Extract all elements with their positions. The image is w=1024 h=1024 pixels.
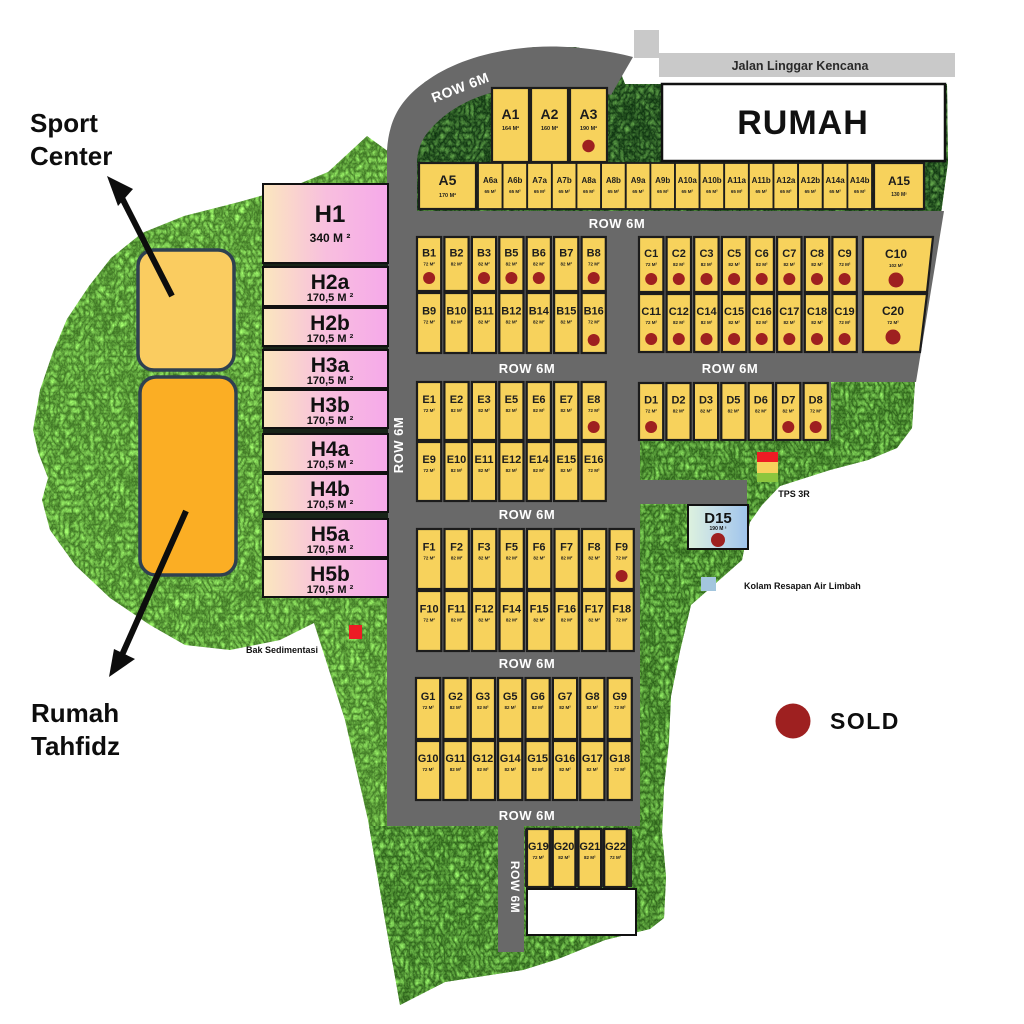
svg-text:72 M²: 72 M² <box>588 468 600 473</box>
svg-text:82 M²: 82 M² <box>673 409 685 414</box>
svg-text:F15: F15 <box>530 604 549 616</box>
svg-text:65 M²: 65 M² <box>509 189 521 194</box>
svg-text:A12b: A12b <box>801 176 821 185</box>
svg-text:82 M²: 82 M² <box>533 468 545 473</box>
svg-text:82 M²: 82 M² <box>506 320 518 325</box>
svg-text:D5: D5 <box>726 395 740 407</box>
svg-text:Rumah: Rumah <box>31 698 119 728</box>
svg-text:E6: E6 <box>532 394 545 406</box>
svg-text:E2: E2 <box>450 394 463 406</box>
svg-text:D6: D6 <box>754 395 768 407</box>
svg-text:65 M²: 65 M² <box>755 189 767 194</box>
svg-text:82 M²: 82 M² <box>451 320 463 325</box>
svg-text:A9a: A9a <box>631 176 646 185</box>
svg-text:130 M²: 130 M² <box>891 192 907 198</box>
svg-text:72 M²: 72 M² <box>422 705 434 710</box>
svg-text:82 M²: 82 M² <box>588 618 600 623</box>
svg-text:E8: E8 <box>587 394 600 406</box>
svg-text:72 M²: 72 M² <box>588 408 600 413</box>
svg-text:G17: G17 <box>582 753 603 765</box>
svg-text:340 M ²: 340 M ² <box>310 231 351 245</box>
svg-text:82 M²: 82 M² <box>756 320 768 325</box>
svg-text:E12: E12 <box>502 454 522 466</box>
svg-text:72 M²: 72 M² <box>533 855 545 860</box>
svg-text:82 M²: 82 M² <box>561 556 573 561</box>
svg-text:82 M²: 82 M² <box>450 767 462 772</box>
svg-text:82 M²: 82 M² <box>478 408 490 413</box>
svg-text:82 M²: 82 M² <box>755 409 767 414</box>
svg-text:190 M²: 190 M² <box>580 125 597 132</box>
svg-text:82 M²: 82 M² <box>451 408 463 413</box>
svg-text:G22: G22 <box>605 841 626 853</box>
svg-text:G20: G20 <box>554 841 575 853</box>
svg-text:E7: E7 <box>560 394 573 406</box>
svg-text:ROW 6M: ROW 6M <box>499 361 555 376</box>
svg-text:A6b: A6b <box>507 176 522 185</box>
svg-text:72 M²: 72 M² <box>645 409 657 414</box>
svg-text:ROW 6M: ROW 6M <box>589 216 645 231</box>
svg-text:82 M²: 82 M² <box>728 262 740 267</box>
svg-text:H3a: H3a <box>311 354 350 377</box>
svg-text:65 M²: 65 M² <box>558 189 570 194</box>
svg-text:G5: G5 <box>503 691 518 703</box>
svg-text:G7: G7 <box>558 691 573 703</box>
svg-text:C6: C6 <box>755 248 769 260</box>
svg-text:D8: D8 <box>809 395 823 407</box>
svg-text:C15: C15 <box>724 306 744 318</box>
svg-text:72 M²: 72 M² <box>645 320 657 325</box>
svg-text:65 M²: 65 M² <box>805 189 817 194</box>
svg-text:A8a: A8a <box>581 176 596 185</box>
svg-text:H1: H1 <box>315 201 346 228</box>
svg-text:C18: C18 <box>807 306 827 318</box>
svg-text:C20: C20 <box>882 304 904 318</box>
svg-text:D1: D1 <box>644 395 658 407</box>
svg-text:Sport: Sport <box>30 108 98 138</box>
svg-text:82 M²: 82 M² <box>506 618 518 623</box>
svg-text:B11: B11 <box>474 306 494 318</box>
svg-text:65 M²: 65 M² <box>854 189 866 194</box>
svg-text:C10: C10 <box>885 247 907 261</box>
svg-text:C11: C11 <box>641 306 661 318</box>
svg-text:ROW 6M: ROW 6M <box>391 417 406 473</box>
svg-text:72 M²: 72 M² <box>645 262 657 267</box>
svg-text:E10: E10 <box>447 454 467 466</box>
svg-text:C12: C12 <box>669 306 689 318</box>
svg-text:65 M²: 65 M² <box>780 189 792 194</box>
svg-text:82 M²: 82 M² <box>784 320 796 325</box>
svg-text:C7: C7 <box>782 248 796 260</box>
svg-text:F3: F3 <box>478 542 491 554</box>
svg-text:ROW 6M: ROW 6M <box>508 861 522 913</box>
svg-text:65 M²: 65 M² <box>632 189 644 194</box>
svg-text:82 M²: 82 M² <box>587 705 599 710</box>
svg-text:72 M²: 72 M² <box>839 320 851 325</box>
svg-text:H3b: H3b <box>310 394 350 417</box>
svg-text:82 M²: 82 M² <box>783 409 795 414</box>
svg-text:D7: D7 <box>781 395 795 407</box>
svg-text:A8b: A8b <box>606 176 621 185</box>
svg-text:82 M²: 82 M² <box>506 261 518 266</box>
svg-text:B6: B6 <box>532 247 546 259</box>
svg-text:82 M²: 82 M² <box>504 705 516 710</box>
svg-text:H4a: H4a <box>311 438 350 461</box>
svg-text:A5: A5 <box>439 172 457 188</box>
svg-text:82 M²: 82 M² <box>506 408 518 413</box>
svg-text:B2: B2 <box>449 247 463 259</box>
svg-text:B8: B8 <box>587 247 601 259</box>
svg-text:170,5 M ²: 170,5 M ² <box>307 292 354 304</box>
svg-text:170,5 M ²: 170,5 M ² <box>307 459 354 471</box>
svg-text:F14: F14 <box>502 604 522 616</box>
svg-text:C17: C17 <box>779 306 799 318</box>
svg-text:C19: C19 <box>835 306 855 318</box>
svg-text:82 M²: 82 M² <box>533 261 545 266</box>
svg-text:82 M²: 82 M² <box>478 468 490 473</box>
svg-text:170,5 M ²: 170,5 M ² <box>307 375 354 387</box>
svg-text:72 M²: 72 M² <box>422 767 434 772</box>
svg-text:D2: D2 <box>671 395 685 407</box>
svg-text:170,5 M ²: 170,5 M ² <box>307 584 354 596</box>
svg-text:G18: G18 <box>609 753 630 765</box>
svg-text:160 M²: 160 M² <box>541 125 558 132</box>
svg-text:G3: G3 <box>475 691 490 703</box>
svg-text:G16: G16 <box>555 753 576 765</box>
svg-text:E9: E9 <box>422 454 435 466</box>
svg-text:A10b: A10b <box>702 176 722 185</box>
svg-text:TPS 3R: TPS 3R <box>778 489 810 499</box>
svg-text:B3: B3 <box>477 247 491 259</box>
svg-text:C5: C5 <box>727 248 741 260</box>
svg-text:C3: C3 <box>699 248 713 260</box>
svg-text:82 M²: 82 M² <box>673 320 685 325</box>
svg-text:F6: F6 <box>533 542 546 554</box>
svg-text:E15: E15 <box>557 454 577 466</box>
svg-text:G1: G1 <box>421 691 436 703</box>
svg-text:G15: G15 <box>527 753 548 765</box>
svg-text:65 M²: 65 M² <box>534 189 546 194</box>
svg-text:E5: E5 <box>505 394 518 406</box>
svg-text:82 M²: 82 M² <box>561 618 573 623</box>
svg-text:72 M²: 72 M² <box>588 320 600 325</box>
svg-text:82 M²: 82 M² <box>701 262 713 267</box>
svg-text:170 M²: 170 M² <box>439 192 456 199</box>
svg-text:C9: C9 <box>838 248 852 260</box>
svg-text:A3: A3 <box>580 106 598 122</box>
svg-text:Kolam Resapan Air Limbah: Kolam Resapan Air Limbah <box>744 581 861 591</box>
svg-text:82 M²: 82 M² <box>506 468 518 473</box>
svg-text:D15: D15 <box>704 510 732 527</box>
svg-text:E3: E3 <box>477 394 490 406</box>
svg-text:A6a: A6a <box>483 176 498 185</box>
svg-text:82 M²: 82 M² <box>532 767 544 772</box>
svg-text:SOLD: SOLD <box>830 708 900 734</box>
svg-text:82 M²: 82 M² <box>533 618 545 623</box>
svg-text:82 M²: 82 M² <box>673 262 685 267</box>
svg-text:A11b: A11b <box>752 176 771 185</box>
svg-text:G2: G2 <box>448 691 463 703</box>
svg-text:B9: B9 <box>422 306 436 318</box>
svg-text:A12a: A12a <box>776 176 796 185</box>
svg-text:H2b: H2b <box>310 312 350 335</box>
svg-text:C2: C2 <box>672 248 686 260</box>
svg-text:F12: F12 <box>475 604 494 616</box>
svg-text:72 M²: 72 M² <box>810 409 822 414</box>
svg-text:ROW 6M: ROW 6M <box>702 361 758 376</box>
svg-text:72 M²: 72 M² <box>616 618 628 623</box>
svg-text:G6: G6 <box>530 691 545 703</box>
svg-text:A14a: A14a <box>826 176 846 185</box>
svg-text:G21: G21 <box>579 841 600 853</box>
svg-text:C1: C1 <box>644 248 658 260</box>
svg-text:65 M²: 65 M² <box>657 189 669 194</box>
svg-text:F18: F18 <box>612 604 631 616</box>
svg-text:72 M²: 72 M² <box>614 705 626 710</box>
svg-text:B1: B1 <box>422 247 436 259</box>
svg-text:E14: E14 <box>529 454 549 466</box>
svg-text:Jalan Linggar Kencana: Jalan Linggar Kencana <box>732 59 870 73</box>
svg-text:F9: F9 <box>615 542 628 554</box>
svg-text:82 M²: 82 M² <box>811 262 823 267</box>
svg-text:82 M²: 82 M² <box>701 320 713 325</box>
svg-text:B5: B5 <box>504 247 518 259</box>
svg-text:ROW 6M: ROW 6M <box>499 656 555 671</box>
svg-text:RUMAH: RUMAH <box>737 104 869 142</box>
svg-text:72 M²: 72 M² <box>614 767 626 772</box>
svg-text:C14: C14 <box>696 306 717 318</box>
svg-text:72 M²: 72 M² <box>423 618 435 623</box>
svg-text:F16: F16 <box>557 604 576 616</box>
svg-text:C16: C16 <box>752 306 772 318</box>
svg-text:B7: B7 <box>559 247 573 259</box>
svg-text:72 M²: 72 M² <box>423 320 435 325</box>
svg-text:Center: Center <box>30 141 112 171</box>
svg-text:82 M²: 82 M² <box>451 618 463 623</box>
svg-text:F5: F5 <box>505 542 518 554</box>
svg-text:170,5 M ²: 170,5 M ² <box>307 415 354 427</box>
svg-text:B12: B12 <box>501 306 521 318</box>
svg-text:170,5 M ²: 170,5 M ² <box>307 499 354 511</box>
svg-text:65 M²: 65 M² <box>682 189 694 194</box>
svg-text:82 M²: 82 M² <box>451 556 463 561</box>
svg-text:72 M²: 72 M² <box>588 261 600 266</box>
svg-text:65 M²: 65 M² <box>706 189 718 194</box>
svg-text:ROW 6M: ROW 6M <box>499 507 555 522</box>
svg-text:B16: B16 <box>584 306 604 318</box>
svg-text:170,5 M ²: 170,5 M ² <box>307 333 354 345</box>
svg-text:G10: G10 <box>418 753 439 765</box>
svg-text:82 M²: 82 M² <box>477 705 489 710</box>
svg-text:82 M²: 82 M² <box>559 705 571 710</box>
svg-text:82 M²: 82 M² <box>587 767 599 772</box>
svg-text:170,5 M ²: 170,5 M ² <box>307 544 354 556</box>
svg-text:82 M²: 82 M² <box>700 409 712 414</box>
svg-text:82 M²: 82 M² <box>558 855 570 860</box>
svg-text:G11: G11 <box>445 753 465 765</box>
svg-text:72 M²: 72 M² <box>610 855 622 860</box>
svg-text:82 M²: 82 M² <box>728 320 740 325</box>
svg-text:A11a: A11a <box>727 176 746 185</box>
svg-text:72 M²: 72 M² <box>423 556 435 561</box>
svg-text:82 M²: 82 M² <box>561 320 573 325</box>
svg-text:82 M²: 82 M² <box>561 261 573 266</box>
svg-text:A1: A1 <box>502 106 520 122</box>
svg-text:F8: F8 <box>588 542 601 554</box>
svg-text:82 M²: 82 M² <box>478 618 490 623</box>
svg-text:82 M²: 82 M² <box>478 320 490 325</box>
svg-text:H5a: H5a <box>311 523 350 546</box>
svg-text:164 M²: 164 M² <box>502 125 519 132</box>
svg-text:B10: B10 <box>446 306 466 318</box>
svg-text:72 M²: 72 M² <box>616 556 628 561</box>
svg-text:F11: F11 <box>447 604 465 616</box>
svg-text:G14: G14 <box>500 753 522 765</box>
svg-text:82 M²: 82 M² <box>584 855 596 860</box>
svg-text:82 M²: 82 M² <box>533 556 545 561</box>
svg-text:82 M²: 82 M² <box>533 320 545 325</box>
svg-text:102 M²: 102 M² <box>889 263 904 268</box>
svg-text:82 M²: 82 M² <box>477 767 489 772</box>
svg-text:82 M²: 82 M² <box>451 261 463 266</box>
svg-text:F2: F2 <box>450 542 463 554</box>
svg-text:H5b: H5b <box>310 563 350 586</box>
svg-text:65 M²: 65 M² <box>583 189 595 194</box>
svg-text:190 M ²: 190 M ² <box>710 526 727 532</box>
svg-text:A7a: A7a <box>532 176 547 185</box>
svg-text:F17: F17 <box>585 604 604 616</box>
svg-text:82 M²: 82 M² <box>561 408 573 413</box>
svg-text:72 M²: 72 M² <box>423 468 435 473</box>
svg-text:65 M²: 65 M² <box>829 189 841 194</box>
svg-text:A7b: A7b <box>557 176 572 185</box>
svg-text:C8: C8 <box>810 248 824 260</box>
svg-text:82 M²: 82 M² <box>784 262 796 267</box>
svg-text:65 M²: 65 M² <box>608 189 620 194</box>
svg-text:82 M²: 82 M² <box>450 705 462 710</box>
svg-text:A14b: A14b <box>850 176 870 185</box>
svg-text:G12: G12 <box>472 753 493 765</box>
svg-text:B15: B15 <box>556 306 576 318</box>
svg-text:72 M²: 72 M² <box>839 262 851 267</box>
svg-text:82 M²: 82 M² <box>728 409 740 414</box>
svg-text:E11: E11 <box>475 454 494 466</box>
svg-text:82 M²: 82 M² <box>506 556 518 561</box>
svg-text:F1: F1 <box>423 542 436 554</box>
svg-text:82 M²: 82 M² <box>811 320 823 325</box>
svg-text:72 M²: 72 M² <box>887 320 899 325</box>
svg-text:B14: B14 <box>529 306 550 318</box>
svg-text:72 M²: 72 M² <box>423 261 435 266</box>
svg-text:F7: F7 <box>560 542 573 554</box>
svg-text:82 M²: 82 M² <box>478 261 490 266</box>
svg-text:A2: A2 <box>541 106 559 122</box>
svg-text:82 M²: 82 M² <box>451 468 463 473</box>
svg-text:Bak Sedimentasi: Bak Sedimentasi <box>246 645 318 655</box>
svg-text:G8: G8 <box>585 691 600 703</box>
svg-text:65 M²: 65 M² <box>731 189 743 194</box>
svg-text:82 M²: 82 M² <box>504 767 516 772</box>
svg-text:Tahfidz: Tahfidz <box>31 731 120 761</box>
svg-text:E16: E16 <box>584 454 604 466</box>
svg-text:82 M²: 82 M² <box>532 705 544 710</box>
svg-text:65 M²: 65 M² <box>485 189 497 194</box>
svg-text:A10a: A10a <box>678 176 698 185</box>
svg-text:G19: G19 <box>528 841 549 853</box>
svg-text:82 M²: 82 M² <box>559 767 571 772</box>
svg-text:D3: D3 <box>699 395 713 407</box>
svg-text:ROW 6M: ROW 6M <box>499 808 555 823</box>
svg-text:G9: G9 <box>612 691 627 703</box>
svg-text:H4b: H4b <box>310 478 350 501</box>
svg-text:82 M²: 82 M² <box>533 408 545 413</box>
svg-text:F10: F10 <box>420 604 439 616</box>
svg-text:H2a: H2a <box>311 271 350 294</box>
svg-text:A15: A15 <box>888 174 910 188</box>
svg-text:A9b: A9b <box>655 176 670 185</box>
svg-text:82 M²: 82 M² <box>756 262 768 267</box>
svg-text:82 M²: 82 M² <box>588 556 600 561</box>
svg-text:82 M²: 82 M² <box>478 556 490 561</box>
svg-text:72 M²: 72 M² <box>423 408 435 413</box>
svg-text:82 M²: 82 M² <box>561 468 573 473</box>
svg-text:E1: E1 <box>422 394 435 406</box>
